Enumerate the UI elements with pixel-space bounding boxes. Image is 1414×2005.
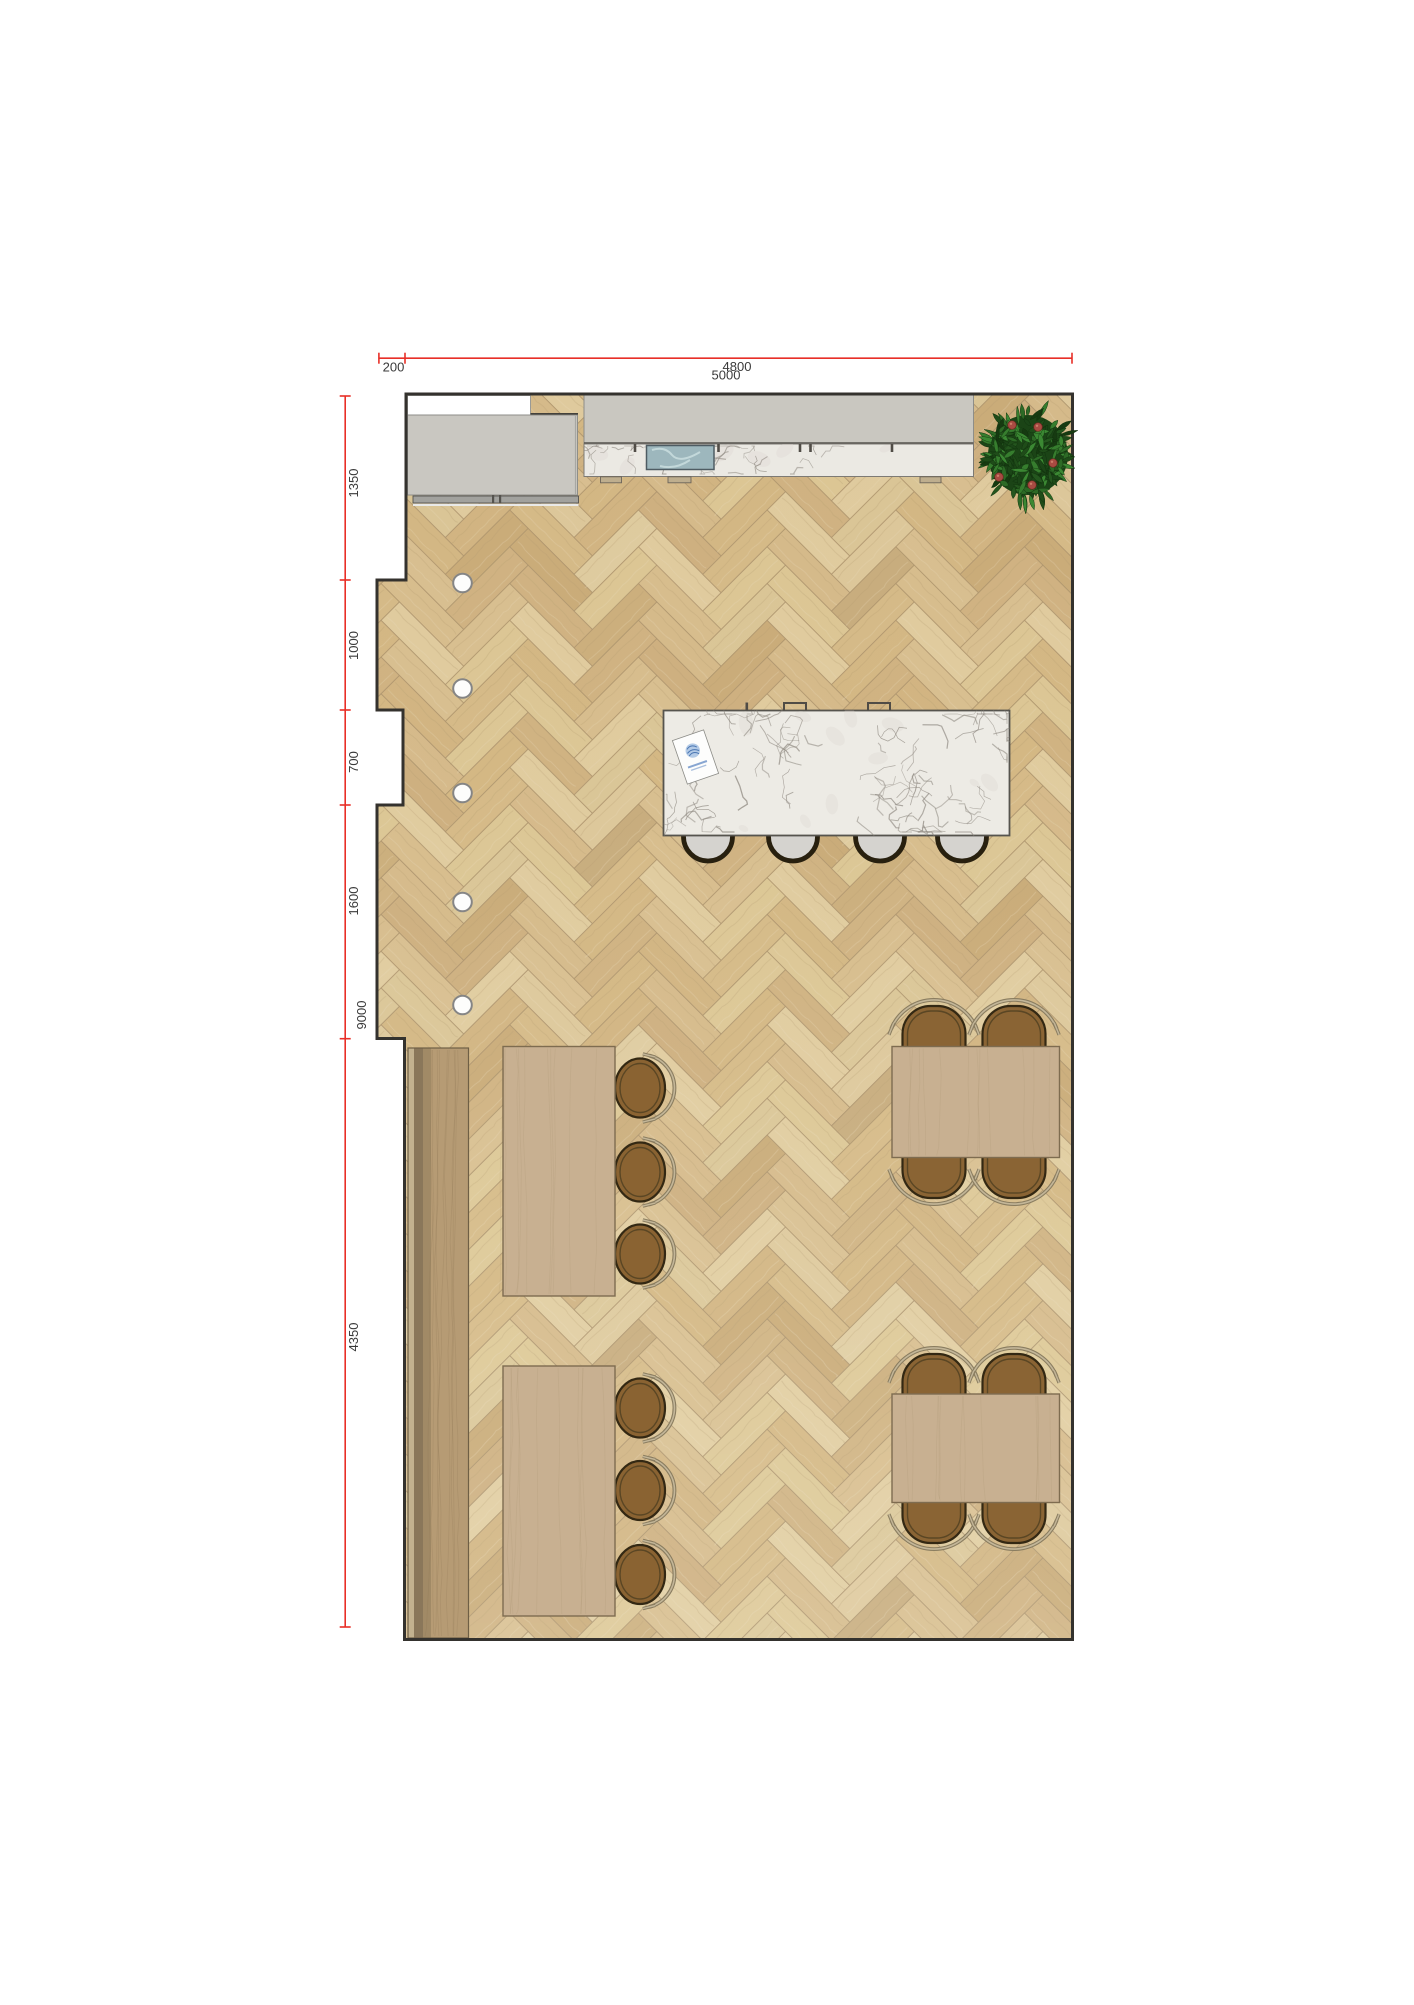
svg-text:9000: 9000 [354, 1001, 369, 1030]
svg-text:1600: 1600 [346, 887, 361, 916]
svg-text:1350: 1350 [346, 469, 361, 498]
svg-text:700: 700 [346, 751, 361, 773]
svg-text:4350: 4350 [346, 1323, 361, 1352]
svg-text:200: 200 [383, 360, 405, 375]
svg-text:1000: 1000 [346, 631, 361, 660]
svg-text:5000: 5000 [712, 368, 741, 383]
